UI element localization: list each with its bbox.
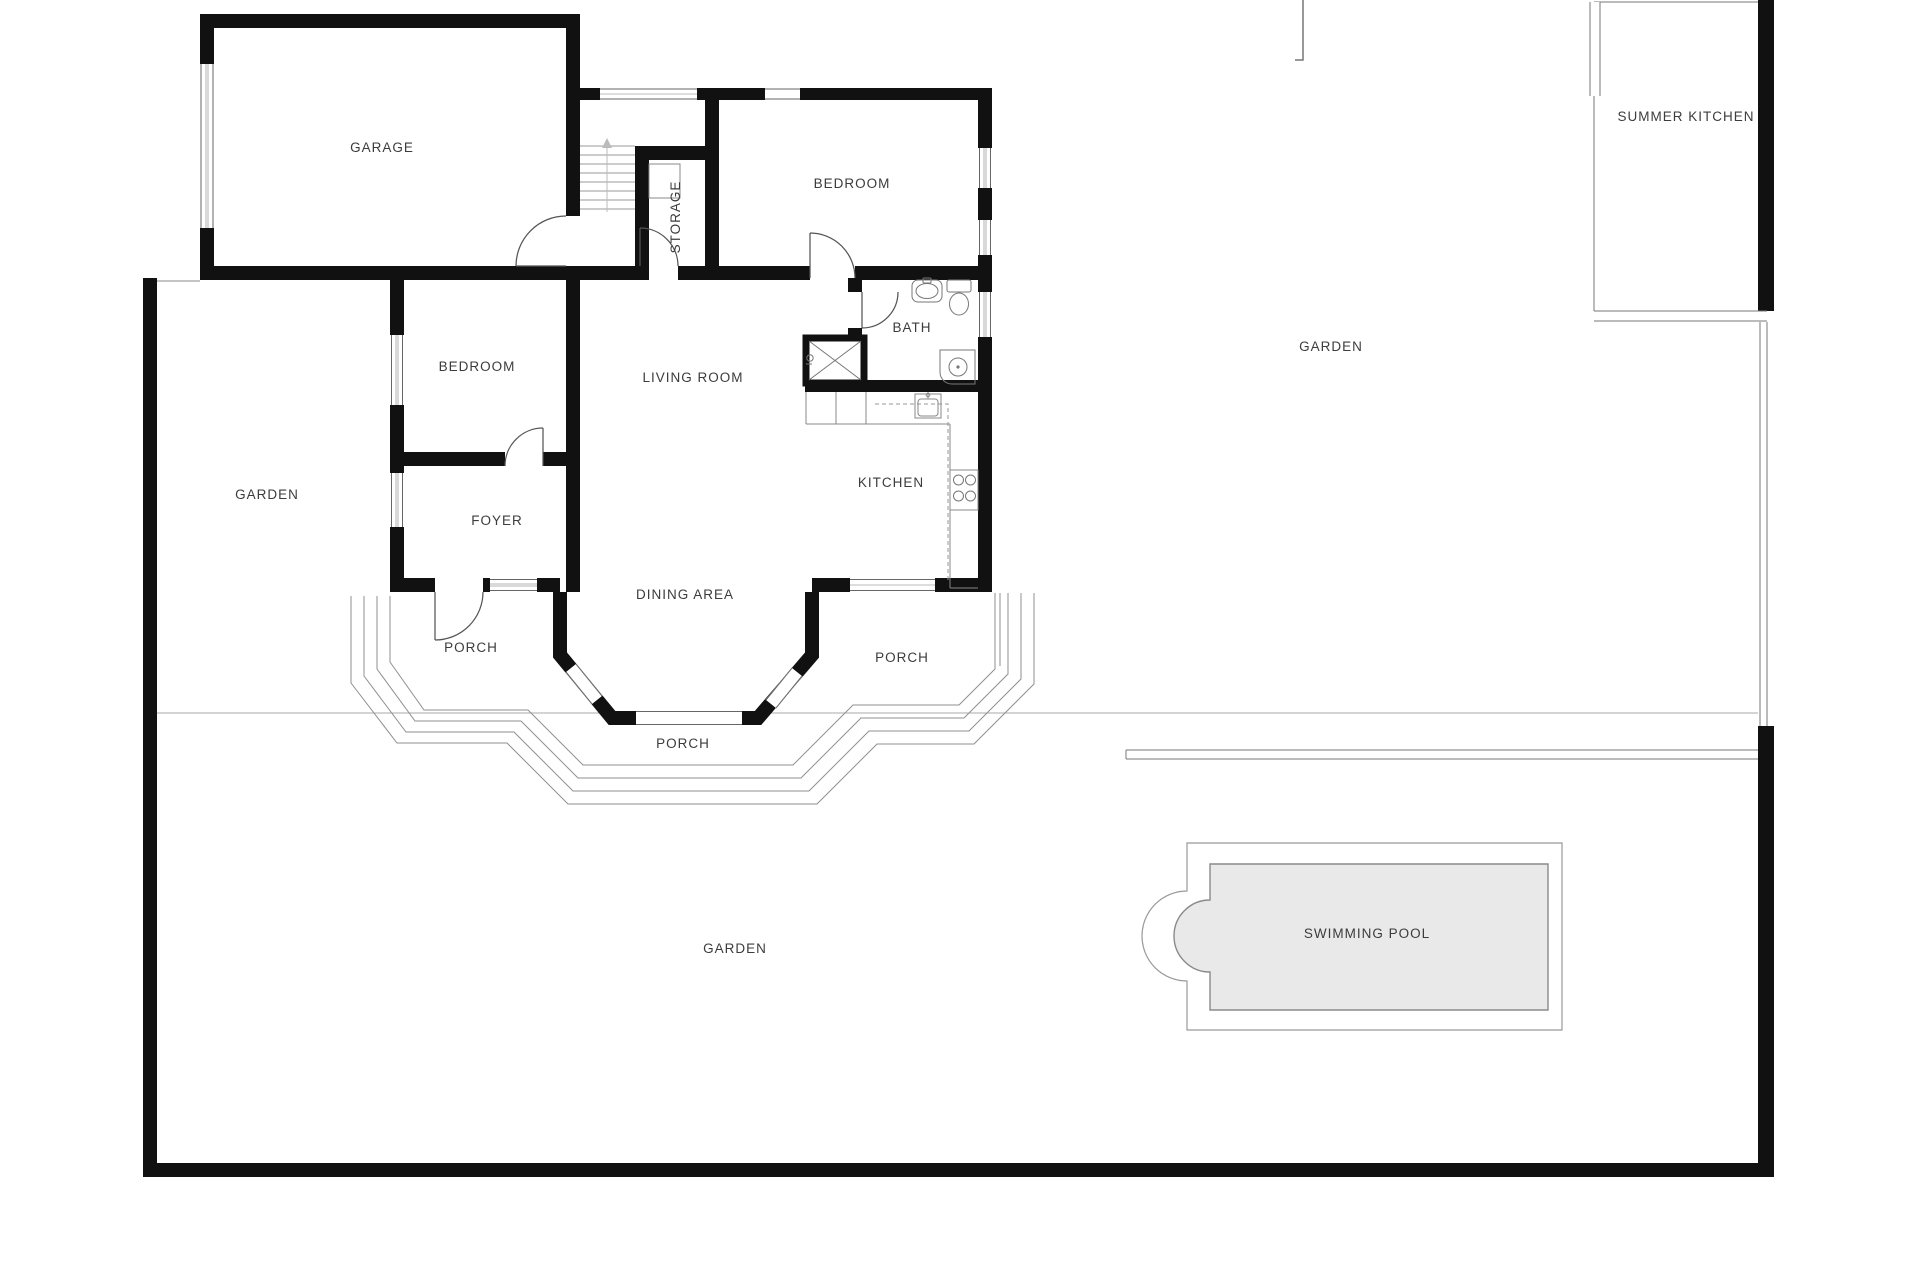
summer-kitchen-bottom-wall bbox=[1594, 311, 1767, 321]
room-label-bedroom-top: BEDROOM bbox=[814, 176, 891, 191]
kitchen-sink-fixture bbox=[915, 392, 941, 418]
room-label-living-room: LIVING ROOM bbox=[642, 370, 743, 385]
foyer-front-window bbox=[490, 578, 537, 592]
summer-kitchen-structure bbox=[1295, 0, 1774, 321]
bath-fixtures bbox=[806, 278, 975, 384]
bay-window-walls bbox=[560, 592, 812, 725]
room-label-porch-bottom: PORCH bbox=[656, 736, 710, 751]
boundary-fence bbox=[1760, 322, 1767, 726]
room-label-kitchen: KITCHEN bbox=[858, 475, 924, 490]
sink-fixture bbox=[912, 278, 942, 302]
bedroom-top-window bbox=[765, 88, 800, 100]
floorplan-svg: GARAGE BEDROOM STORAGE BATH LIVING ROOM … bbox=[0, 0, 1920, 1280]
room-label-bath: BATH bbox=[892, 320, 931, 335]
garage-door-window bbox=[200, 64, 214, 228]
garage-door-swing bbox=[516, 216, 566, 266]
room-label-garden-bottom: GARDEN bbox=[703, 941, 767, 956]
stove-fixture bbox=[950, 470, 978, 510]
room-label-garage: GARAGE bbox=[350, 140, 414, 155]
kitchen-fixtures bbox=[806, 392, 978, 588]
windows bbox=[200, 64, 992, 592]
room-label-dining-area: DINING AREA bbox=[636, 587, 734, 602]
shower-cabin bbox=[806, 338, 864, 383]
entry-door-swing bbox=[435, 592, 483, 640]
room-label-porch-right: PORCH bbox=[875, 650, 929, 665]
stair-direction-arrow bbox=[602, 138, 612, 148]
bedroom-left-door-swing bbox=[505, 428, 543, 466]
room-label-porch-left: PORCH bbox=[444, 640, 498, 655]
room-label-foyer: FOYER bbox=[471, 513, 523, 528]
room-label-garden-right: GARDEN bbox=[1299, 339, 1363, 354]
toilet-fixture bbox=[947, 280, 971, 315]
bay-window-right bbox=[766, 668, 802, 708]
bedroom-top-door-swing bbox=[810, 233, 855, 278]
floorplan-canvas: GARAGE BEDROOM STORAGE BATH LIVING ROOM … bbox=[0, 0, 1920, 1280]
garden-gate-line bbox=[1295, 0, 1303, 60]
room-label-bedroom-left: BEDROOM bbox=[439, 359, 516, 374]
room-labels: GARAGE BEDROOM STORAGE BATH LIVING ROOM … bbox=[235, 109, 1754, 956]
staircase bbox=[580, 138, 635, 212]
room-label-storage: STORAGE bbox=[668, 181, 683, 254]
hall-window bbox=[600, 88, 697, 100]
house-walls bbox=[200, 14, 992, 592]
bedroom-left-window bbox=[390, 335, 404, 405]
boundary-walls bbox=[143, 278, 1774, 1177]
upper-cabinet-dashed-line bbox=[875, 404, 948, 583]
kitchen-porch-window bbox=[850, 578, 935, 592]
porch-step-outlines bbox=[351, 593, 1034, 804]
bay-window-bottom bbox=[636, 712, 742, 725]
room-label-summer-kitchen: SUMMER KITCHEN bbox=[1617, 109, 1754, 124]
room-label-garden-left: GARDEN bbox=[235, 487, 299, 502]
foyer-window bbox=[390, 473, 404, 527]
summer-kitchen-right-wall bbox=[1758, 0, 1774, 311]
bedroom-right-window-2 bbox=[978, 220, 992, 255]
garden-step-bar bbox=[1126, 750, 1761, 759]
bedroom-right-window-1 bbox=[978, 148, 992, 188]
bath-window bbox=[978, 292, 992, 337]
summer-kitchen-window bbox=[1590, 2, 1600, 96]
bay-window-left bbox=[566, 664, 602, 704]
room-label-swimming-pool: SWIMMING POOL bbox=[1304, 926, 1430, 941]
shower-fixture bbox=[940, 350, 975, 384]
